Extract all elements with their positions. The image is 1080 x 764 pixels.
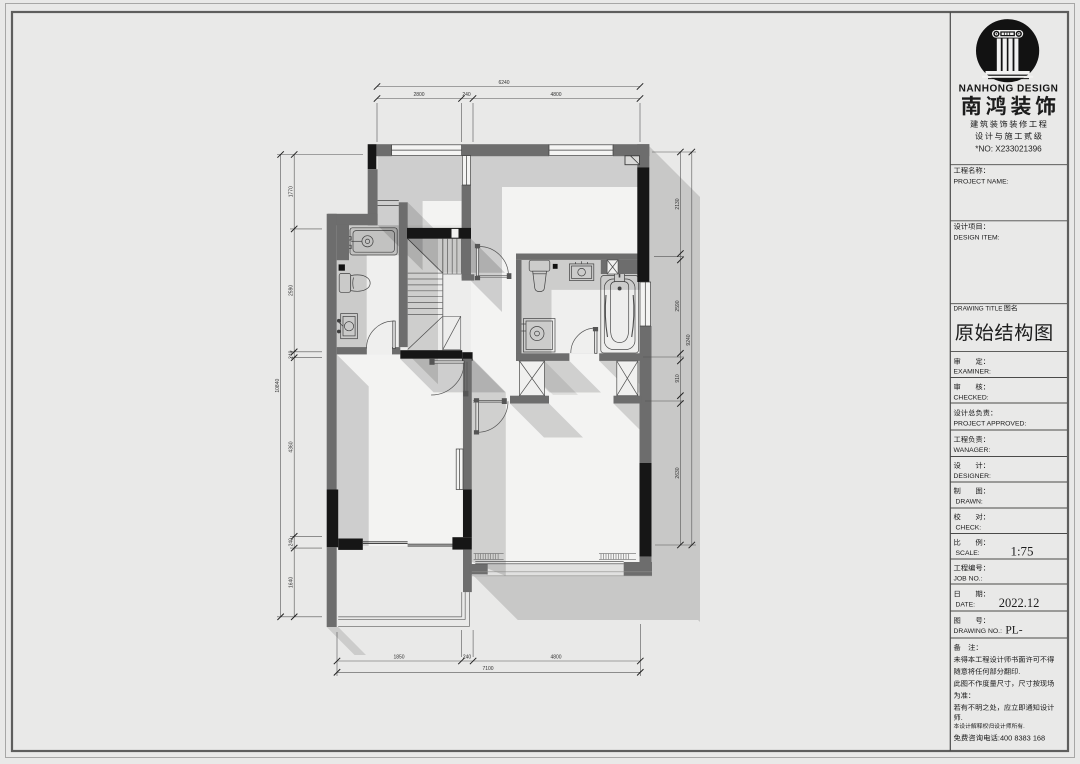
svg-text:910: 910 (675, 374, 681, 383)
svg-text:4800: 4800 (550, 92, 561, 98)
svg-text:1640: 1640 (289, 577, 295, 588)
svg-text:NANHONG DESIGN: NANHONG DESIGN (959, 84, 1059, 95)
svg-text:2630: 2630 (675, 467, 681, 478)
svg-text:SCALE:: SCALE: (956, 550, 980, 557)
svg-text:2800: 2800 (413, 92, 424, 98)
svg-text:4360: 4360 (289, 441, 295, 452)
svg-text:2590: 2590 (289, 285, 295, 296)
svg-text:1850: 1850 (393, 655, 404, 661)
svg-text::400 8383 168: :400 8383 168 (998, 734, 1045, 743)
svg-text:DESIGNER:: DESIGNER: (954, 473, 992, 480)
svg-text:240: 240 (289, 350, 295, 359)
svg-text:DESIGN ITEM:: DESIGN ITEM: (954, 235, 1000, 242)
svg-text:*NO: X233021396: *NO: X233021396 (975, 145, 1042, 154)
svg-text:2022.12: 2022.12 (999, 596, 1040, 610)
svg-text:DRAWN:: DRAWN: (956, 499, 983, 506)
svg-text:1:75: 1:75 (1010, 544, 1033, 559)
svg-text:CHECK:: CHECK: (956, 525, 982, 532)
svg-text:.: . (1018, 667, 1020, 676)
svg-text:240: 240 (462, 92, 471, 98)
svg-text:240: 240 (463, 655, 472, 661)
svg-text:DATE:: DATE: (956, 602, 976, 609)
svg-text:PROJECT NAME:: PROJECT NAME: (954, 179, 1009, 186)
svg-text:PL-: PL- (1005, 625, 1022, 637)
svg-text:10840: 10840 (275, 379, 281, 393)
svg-text:6240: 6240 (498, 80, 509, 86)
svg-text:1770: 1770 (289, 186, 295, 197)
svg-text:2130: 2130 (675, 198, 681, 209)
svg-text:PROJECT APPROVED:: PROJECT APPROVED: (954, 421, 1027, 428)
svg-text:DRAWING NO.:: DRAWING NO.: (954, 628, 1003, 635)
svg-text:2590: 2590 (675, 300, 681, 311)
svg-text:7100: 7100 (482, 666, 493, 672)
svg-text:4800: 4800 (550, 655, 561, 661)
svg-text:DRAWING TITLE: DRAWING TITLE (954, 306, 1003, 313)
svg-text:EXAMINER:: EXAMINER: (954, 369, 992, 376)
svg-text:240: 240 (289, 538, 295, 547)
svg-text:WANAGER:: WANAGER: (954, 447, 991, 454)
svg-text:9240: 9240 (686, 334, 692, 345)
svg-text:JOB NO.:: JOB NO.: (954, 576, 983, 583)
svg-text:CHECKED:: CHECKED: (954, 395, 989, 402)
svg-text:.: . (961, 713, 963, 722)
